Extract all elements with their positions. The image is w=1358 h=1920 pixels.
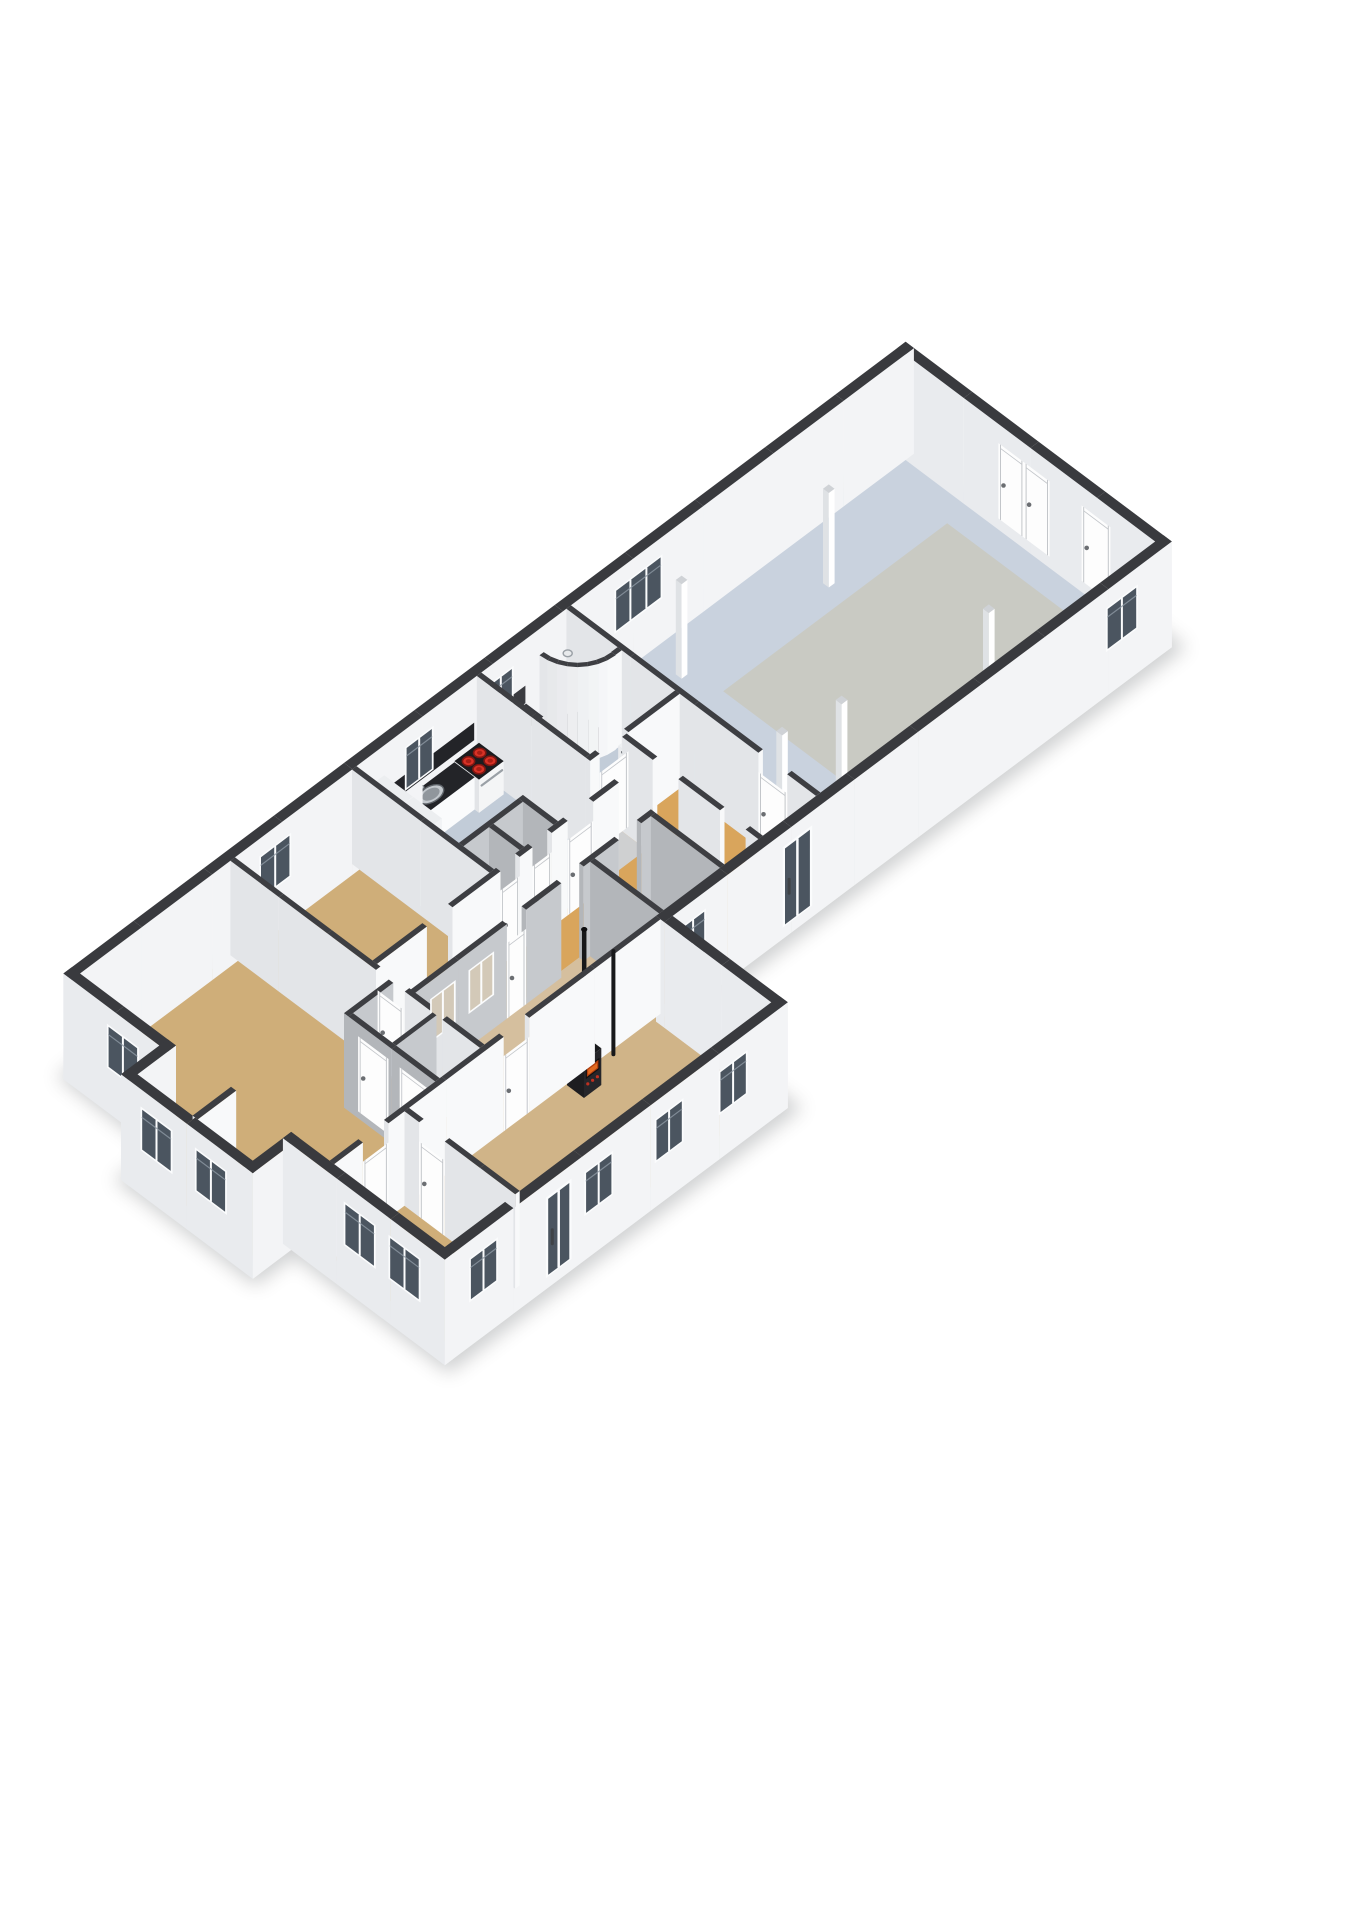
door-door-study xyxy=(507,929,526,1019)
floorplan-3d-view xyxy=(0,0,1358,1920)
fixture-column-2 xyxy=(676,576,688,679)
floorplan-layers xyxy=(57,342,1187,1373)
floorplan-canvas xyxy=(0,0,1358,1920)
fixture-column-4 xyxy=(823,484,835,587)
